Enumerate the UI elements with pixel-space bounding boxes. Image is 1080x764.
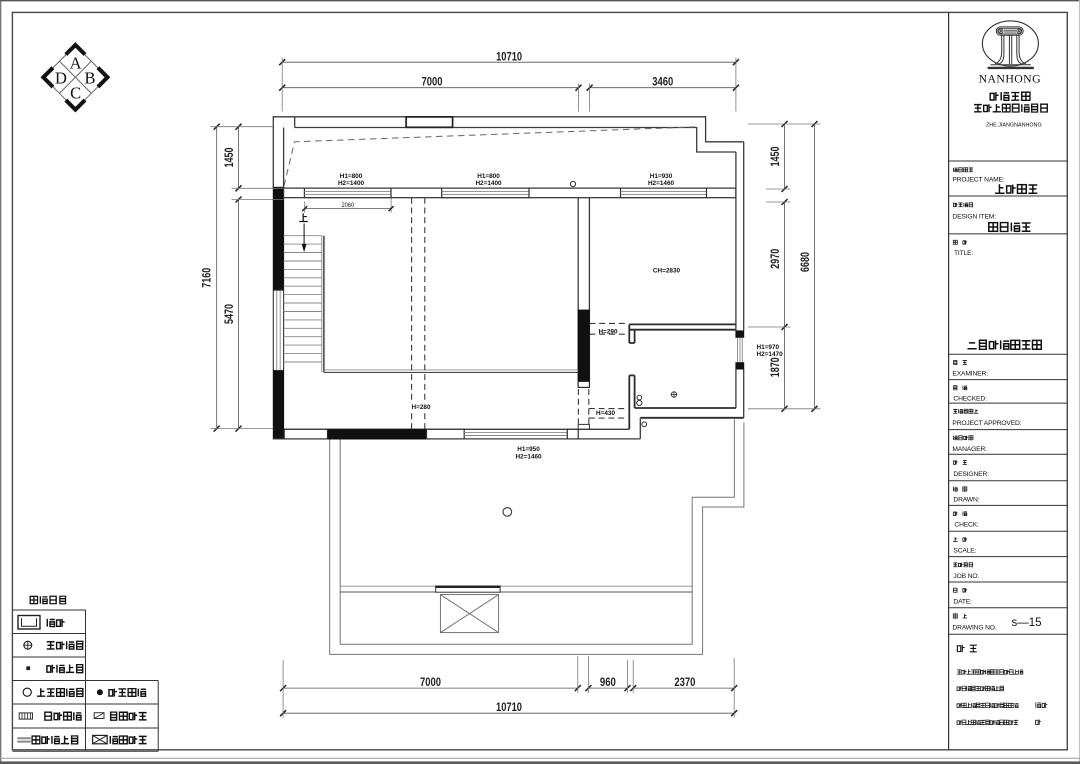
svg-text:CHECK:: CHECK: bbox=[954, 522, 979, 529]
svg-text:A: A bbox=[70, 54, 82, 73]
svg-text:H=280: H=280 bbox=[411, 404, 430, 411]
svg-text:5470: 5470 bbox=[222, 304, 236, 324]
svg-text:DESIGN ITEM:: DESIGN ITEM: bbox=[952, 214, 996, 221]
svg-text:960: 960 bbox=[600, 675, 616, 689]
svg-text:H1=970: H1=970 bbox=[757, 344, 780, 351]
svg-text:PROJECT NAME:: PROJECT NAME: bbox=[952, 177, 1004, 184]
svg-text:H1=930: H1=930 bbox=[650, 173, 673, 180]
svg-text:2970: 2970 bbox=[768, 248, 782, 268]
svg-text:DATE:: DATE: bbox=[953, 598, 972, 605]
svg-text:10710: 10710 bbox=[496, 49, 522, 63]
svg-text:10710: 10710 bbox=[496, 700, 522, 714]
svg-text:D: D bbox=[55, 68, 67, 87]
svg-text:s—15: s—15 bbox=[1011, 617, 1041, 629]
svg-text:7000: 7000 bbox=[420, 675, 441, 689]
svg-text:2060: 2060 bbox=[342, 202, 355, 209]
svg-text:2370: 2370 bbox=[674, 675, 695, 689]
svg-text:NANHONG: NANHONG bbox=[979, 72, 1042, 86]
svg-text:H2=1400: H2=1400 bbox=[475, 180, 502, 187]
svg-text:3460: 3460 bbox=[652, 75, 673, 89]
svg-text:PROJECT APPROVED:: PROJECT APPROVED: bbox=[952, 420, 1021, 427]
svg-text:H2=1470: H2=1470 bbox=[757, 351, 784, 358]
svg-text:H2=1400: H2=1400 bbox=[338, 180, 365, 187]
svg-text:6680: 6680 bbox=[798, 252, 812, 272]
svg-text:1870: 1870 bbox=[768, 357, 782, 377]
svg-text:H1=950: H1=950 bbox=[517, 446, 540, 453]
svg-text:CHECKED:: CHECKED: bbox=[953, 396, 987, 403]
svg-text:DRAWN:: DRAWN: bbox=[953, 497, 979, 504]
svg-text:C: C bbox=[70, 84, 81, 103]
svg-text:H2=1460: H2=1460 bbox=[515, 453, 542, 460]
svg-text:H=430: H=430 bbox=[596, 410, 615, 417]
svg-text:1450: 1450 bbox=[768, 146, 782, 166]
svg-text:DRAWING NO.: DRAWING NO. bbox=[952, 624, 996, 631]
svg-text:SCALE:: SCALE: bbox=[953, 548, 976, 555]
svg-text:H=290: H=290 bbox=[598, 328, 617, 335]
svg-text:JOB NO.: JOB NO. bbox=[953, 573, 979, 580]
svg-text:7000: 7000 bbox=[422, 75, 443, 89]
svg-text:CH=2830: CH=2830 bbox=[653, 268, 681, 275]
svg-text:H2=1460: H2=1460 bbox=[648, 180, 675, 187]
svg-text:7160: 7160 bbox=[200, 267, 214, 287]
svg-text:TITLE:: TITLE: bbox=[954, 250, 973, 257]
svg-text:MANAGER:: MANAGER: bbox=[952, 446, 987, 453]
svg-text:B: B bbox=[84, 68, 95, 87]
svg-text:EXAMINER:: EXAMINER: bbox=[952, 371, 988, 378]
svg-text:H1=800: H1=800 bbox=[477, 173, 500, 180]
svg-text:H1=800: H1=800 bbox=[340, 173, 363, 180]
svg-text:ZHE.JIANGNANHONG: ZHE.JIANGNANHONG bbox=[986, 122, 1042, 128]
svg-text:DESIGNER:: DESIGNER: bbox=[953, 471, 989, 478]
svg-text:1450: 1450 bbox=[222, 147, 236, 167]
